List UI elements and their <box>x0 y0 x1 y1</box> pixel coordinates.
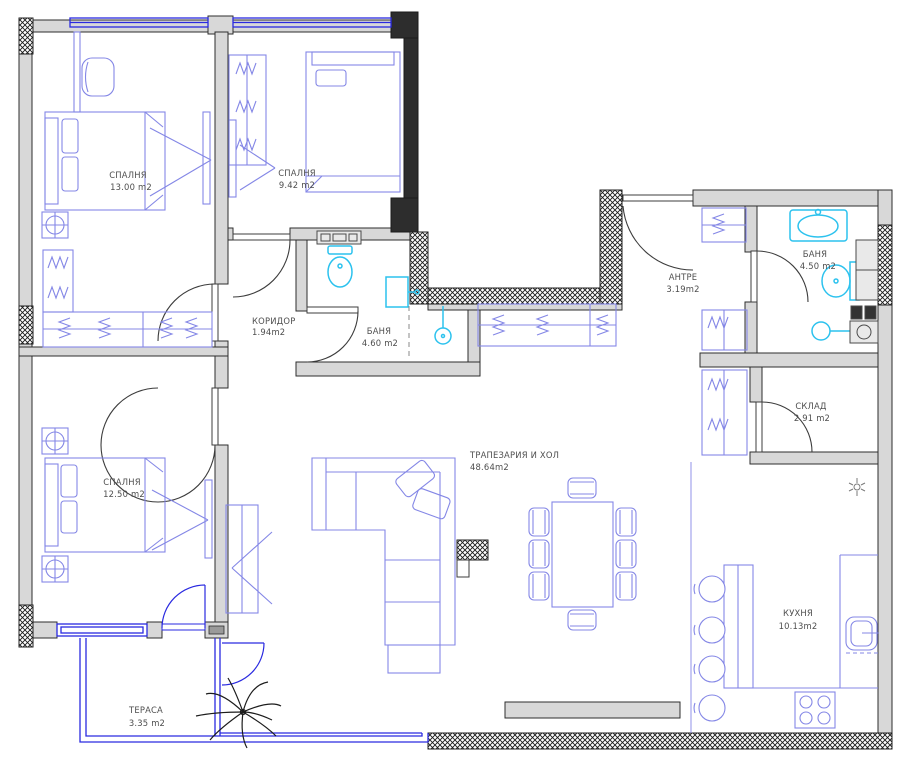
room-area-terrace: 3.35 m2 <box>129 718 165 728</box>
floor-plan-canvas: СПАЛНЯ 13.00 m2 СПАЛНЯ 9.42 m2 КОРИДОР 1… <box>0 0 920 759</box>
room-label-entry: АНТРЕ <box>669 272 698 282</box>
room-area-bathroom-2: 4.50 m2 <box>800 261 836 271</box>
toilet-icon <box>328 246 352 287</box>
kitchen-island <box>724 565 753 688</box>
room-label-corridor: КОРИДОР <box>252 316 295 326</box>
door-bathroom-1 <box>307 307 358 362</box>
plant-icon <box>196 678 281 748</box>
wardrobe-icon <box>702 310 747 455</box>
kitchen-furniture <box>691 462 879 733</box>
room-label-living: ТРАПЕЗАРИЯ И ХОЛ <box>469 450 559 460</box>
bed-icon <box>306 52 400 192</box>
nightstand-icon <box>42 212 68 238</box>
bar-stool-icon <box>694 617 725 643</box>
room-area-bedroom-2: 9.42 m2 <box>279 180 315 190</box>
washing-machine-icon <box>850 321 878 343</box>
room-label-bathroom-1: БАНЯ <box>367 326 391 336</box>
bed-icon <box>45 112 165 210</box>
room-area-kitchen: 10.13m2 <box>779 621 818 631</box>
sink-icon <box>790 210 847 242</box>
room-labels: СПАЛНЯ 13.00 m2 СПАЛНЯ 9.42 m2 КОРИДОР 1… <box>103 168 836 728</box>
dining-table-icon <box>529 478 636 630</box>
door-entrance <box>623 195 693 270</box>
room-label-bedroom-2: СПАЛНЯ <box>278 168 316 178</box>
bathroom-2-fixtures <box>790 210 878 344</box>
room-area-corridor: 1.94m2 <box>252 327 285 337</box>
room-label-bedroom-3: СПАЛНЯ <box>103 477 141 487</box>
room-label-bathroom-2: БАНЯ <box>803 249 827 259</box>
chair-icon <box>82 58 114 96</box>
room-label-kitchen: КУХНЯ <box>783 608 813 618</box>
desk-icon <box>74 32 80 112</box>
tv-cabinet-icon <box>226 505 272 613</box>
door-bedroom-2 <box>233 234 290 297</box>
room-area-entry: 3.19m2 <box>666 284 699 294</box>
window-bedroom-3 <box>57 624 147 636</box>
living-furniture <box>312 458 636 673</box>
laundry-cabinet <box>850 240 878 343</box>
floor-plan: СПАЛНЯ 13.00 m2 СПАЛНЯ 9.42 m2 КОРИДОР 1… <box>0 0 920 759</box>
room-area-bedroom-3: 12.50 m2 <box>103 489 145 499</box>
fan-icon <box>849 478 865 496</box>
bar-stool-icon <box>694 576 725 602</box>
shoe-cabinet-icon <box>702 208 746 242</box>
dark-party-wall <box>391 12 418 232</box>
door-bathroom-2 <box>751 251 808 302</box>
room-label-storage: СКЛАД <box>795 401 827 411</box>
doors <box>101 195 812 685</box>
room-area-storage: 2.91 m2 <box>794 413 830 423</box>
nightstand-icon <box>42 556 68 582</box>
sliding-door-indicator <box>152 480 212 558</box>
furniture-bedroom-3 <box>42 428 272 613</box>
sliding-door-indicator <box>229 120 275 197</box>
bar-stool-icon <box>694 656 725 682</box>
living-window-sill <box>505 702 680 718</box>
vanity-shelf <box>317 231 361 244</box>
shower-icon <box>812 322 851 340</box>
room-area-living: 48.64m2 <box>470 462 509 472</box>
sofa-icon <box>312 458 455 673</box>
door-terrace-bedroom-3 <box>162 585 205 630</box>
bar-stool-icon <box>694 695 725 721</box>
entry-furniture <box>702 208 747 455</box>
nightstand-icon <box>42 428 68 454</box>
sliding-door-indicator <box>150 112 211 204</box>
ottoman-icon <box>388 645 440 673</box>
wardrobe-icon <box>43 250 212 347</box>
room-label-bedroom-1: СПАЛНЯ <box>109 170 147 180</box>
wardrobe-icon <box>229 55 266 165</box>
shower-icon <box>435 306 451 344</box>
room-area-bathroom-1: 4.60 m2 <box>362 338 398 348</box>
room-area-bedroom-1: 13.00 m2 <box>110 182 152 192</box>
structural-column <box>457 540 488 560</box>
kitchen-sink-icon <box>846 617 879 650</box>
stove-icon <box>795 692 835 728</box>
bed-icon <box>45 458 165 552</box>
room-label-terrace: ТЕРАСА <box>128 705 163 715</box>
